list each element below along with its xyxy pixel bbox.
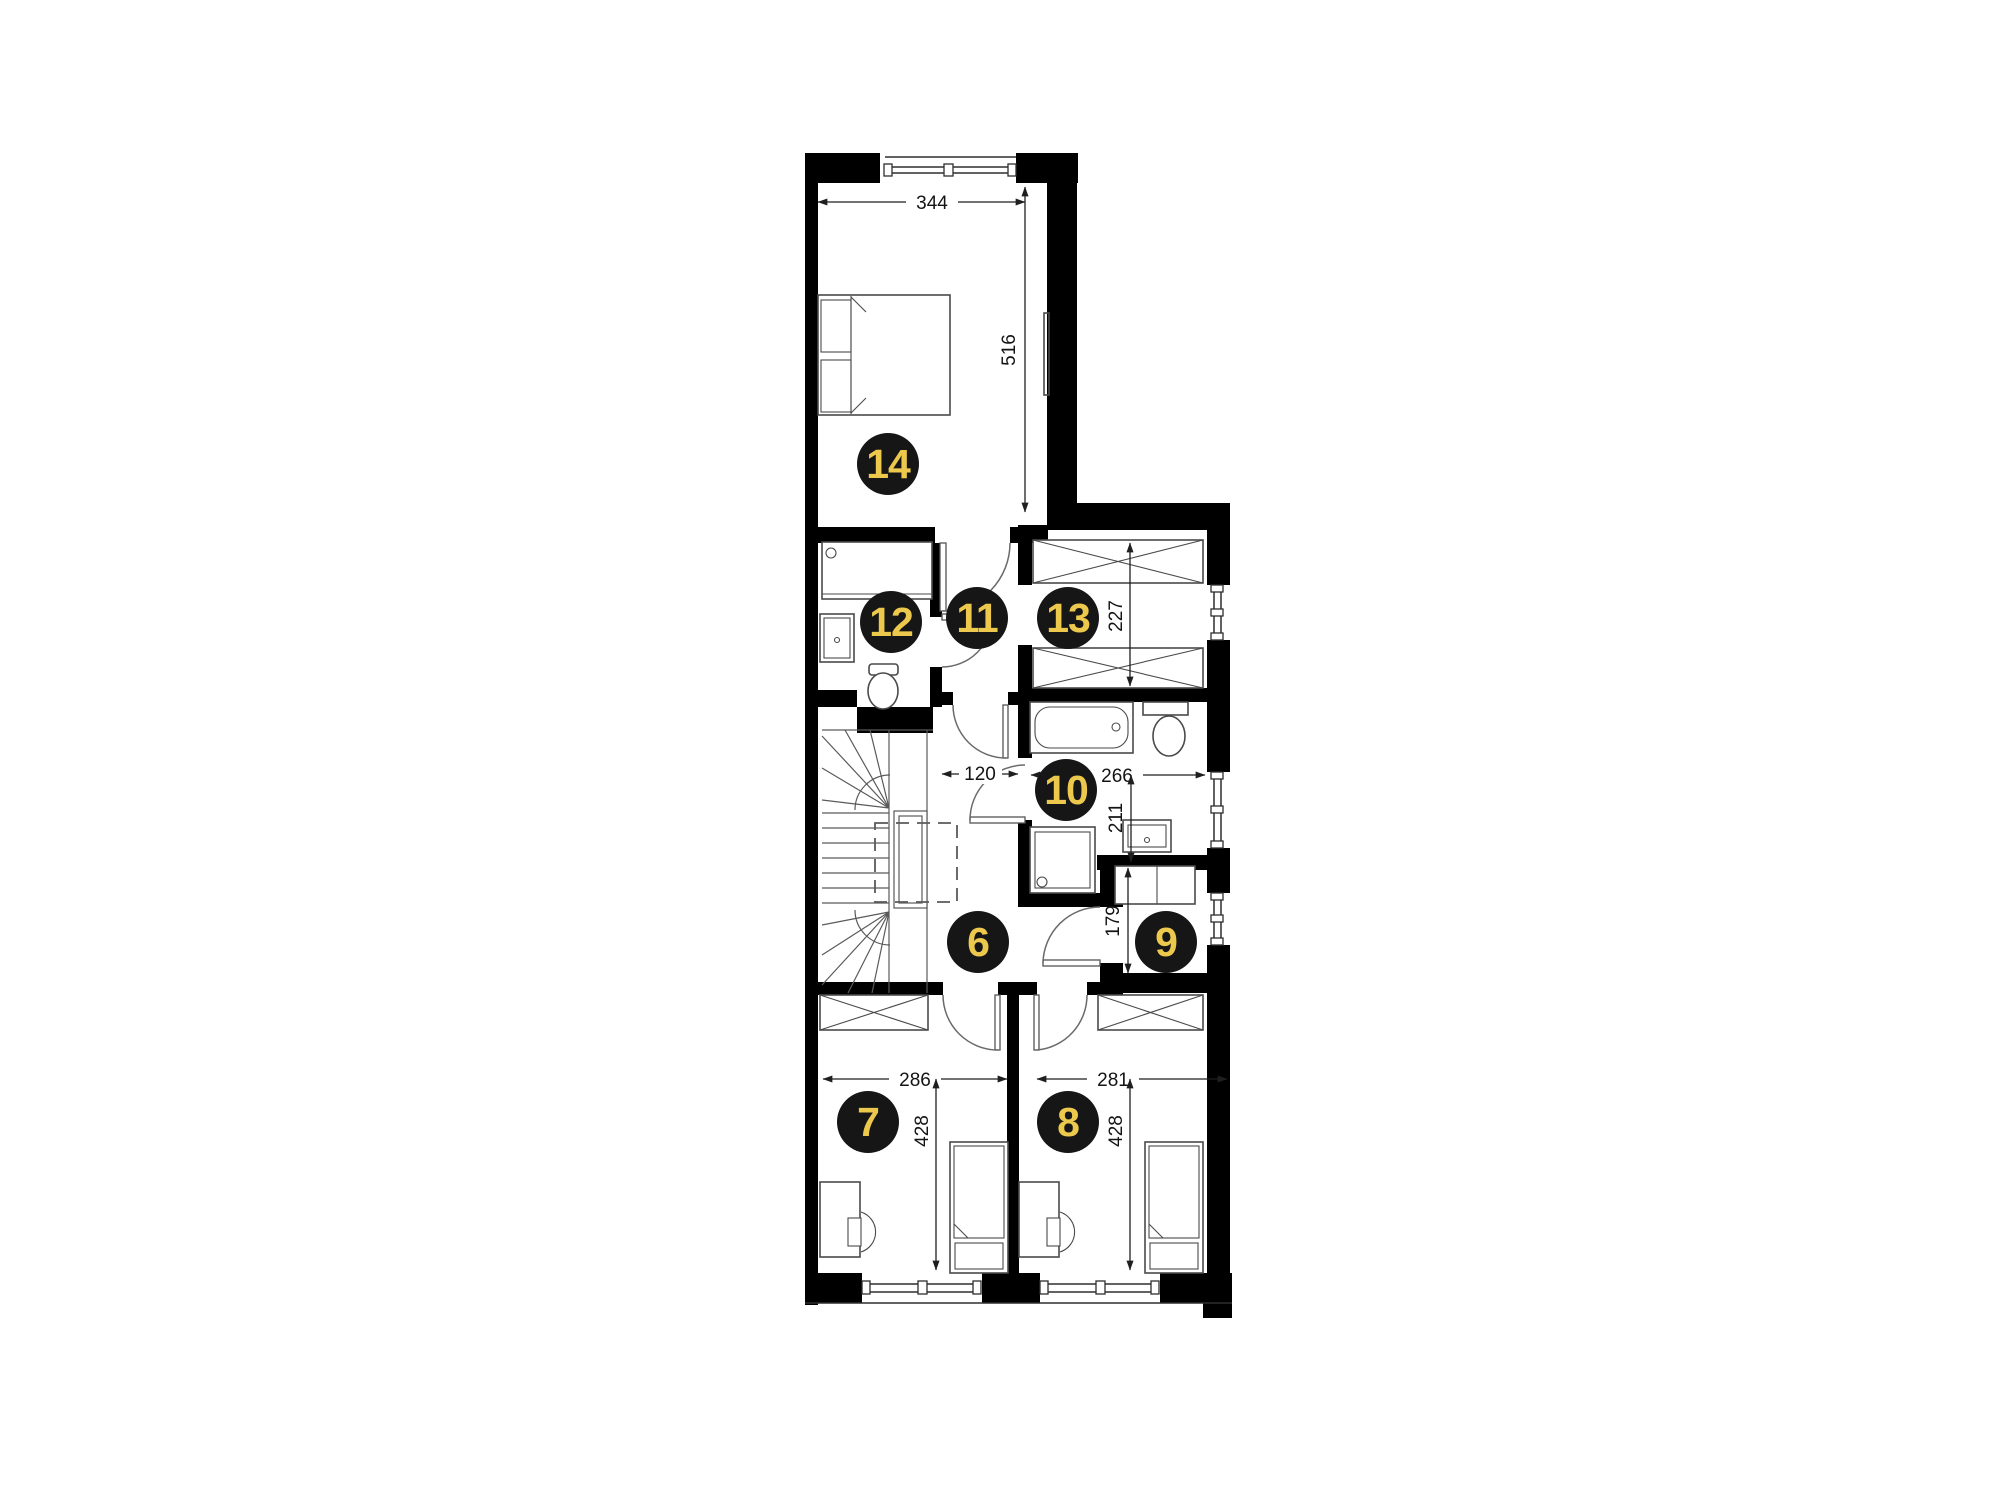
floor-plan: 344 516 227 120 266 211 179 xyxy=(0,0,2000,1500)
svg-text:286: 286 xyxy=(899,1070,931,1091)
window-icon xyxy=(1040,1273,1160,1303)
window-icon xyxy=(1207,893,1232,945)
svg-text:227: 227 xyxy=(1106,600,1127,632)
washbasin-icon xyxy=(820,614,854,662)
window-icon xyxy=(1207,585,1232,640)
radiator-icon xyxy=(1044,313,1049,395)
dimension-bedroom-b-width: 281 xyxy=(1037,1067,1227,1091)
wardrobe-icon xyxy=(1098,995,1203,1030)
svg-text:211: 211 xyxy=(1106,803,1127,833)
double-bed-icon xyxy=(818,295,950,415)
svg-text:7: 7 xyxy=(857,1099,879,1145)
room-badge-7: 7 xyxy=(837,1091,899,1153)
wardrobe-icon xyxy=(1033,648,1203,688)
svg-text:428: 428 xyxy=(912,1115,933,1147)
bathtub-icon xyxy=(1030,702,1133,753)
wardrobe-icon xyxy=(1033,540,1203,583)
svg-text:6: 6 xyxy=(967,919,989,965)
room-badge-13: 13 xyxy=(1037,587,1099,649)
svg-text:120: 120 xyxy=(964,764,996,785)
bench-icon xyxy=(1115,866,1195,904)
stairs xyxy=(822,730,957,993)
washbasin-icon xyxy=(1123,820,1171,852)
floor-plan-page: 344 516 227 120 266 211 179 xyxy=(0,0,2000,1500)
room-badge-10: 10 xyxy=(1035,759,1097,821)
room-badge-8: 8 xyxy=(1037,1091,1099,1153)
single-bed-icon xyxy=(950,1142,1008,1273)
door-swing-landing11 xyxy=(953,705,1008,758)
dimension-master-depth: 516 xyxy=(999,187,1025,512)
svg-text:8: 8 xyxy=(1057,1099,1079,1145)
room-badge-11: 11 xyxy=(946,587,1008,649)
svg-text:281: 281 xyxy=(1097,1070,1129,1091)
window-icon xyxy=(862,1273,982,1303)
svg-text:10: 10 xyxy=(1044,767,1088,813)
dimension-master-width: 344 xyxy=(818,190,1025,214)
door-swing-room7 xyxy=(943,995,1000,1050)
room-badge-12: 12 xyxy=(860,591,922,653)
dimension-bedroom-a-width: 286 xyxy=(823,1067,1007,1091)
room-badge-6: 6 xyxy=(947,911,1009,973)
window-icon xyxy=(1207,772,1232,848)
svg-text:179: 179 xyxy=(1103,905,1124,937)
svg-text:266: 266 xyxy=(1101,766,1133,787)
wardrobe-icon xyxy=(820,995,928,1030)
svg-text:12: 12 xyxy=(869,599,913,645)
shower-icon xyxy=(822,542,932,599)
door-swing-closet9 xyxy=(1043,907,1100,966)
room-badge-9: 9 xyxy=(1135,911,1197,973)
window-icon xyxy=(883,153,1016,183)
door-swing-room8 xyxy=(1034,995,1087,1050)
svg-text:13: 13 xyxy=(1046,595,1090,641)
dimension-bedroom-b-depth: 428 xyxy=(1106,1079,1130,1270)
svg-text:428: 428 xyxy=(1106,1115,1127,1147)
svg-text:516: 516 xyxy=(999,334,1020,366)
room-badge-14: 14 xyxy=(857,433,919,495)
svg-text:344: 344 xyxy=(916,193,948,214)
chair-icon xyxy=(848,1212,876,1252)
svg-text:11: 11 xyxy=(956,595,998,641)
toilet-icon xyxy=(1143,702,1188,756)
chair-icon xyxy=(1047,1212,1075,1252)
single-bed-icon xyxy=(1145,1142,1203,1273)
dimension-corridor-width: 120 xyxy=(942,762,1018,785)
dimension-bedroom-a-depth: 428 xyxy=(912,1079,936,1270)
toilet-icon xyxy=(868,664,898,709)
svg-text:9: 9 xyxy=(1155,919,1177,965)
shower-icon xyxy=(1030,827,1095,893)
svg-text:14: 14 xyxy=(866,441,911,487)
